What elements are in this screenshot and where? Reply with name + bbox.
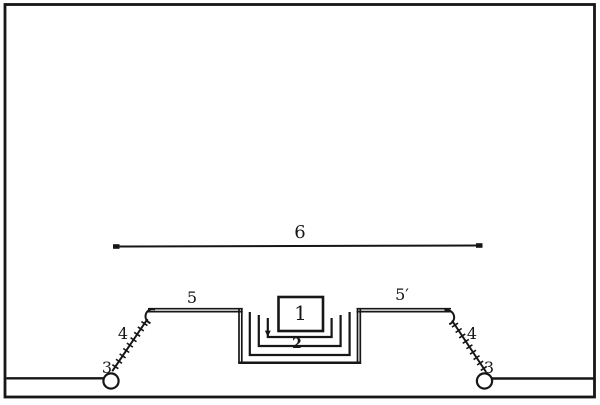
part-label-2: 2 [292,337,302,351]
part-label-3-left: 3 [102,360,112,376]
span-wire-right [357,308,451,363]
figure-canvas: 1 2 3 3 4 4 5 5′ 6 [0,0,600,405]
span-wire-left [148,308,243,363]
part-label-5-right: 5′ [395,287,409,303]
part-label-1: 1 [294,303,307,323]
part-label-4-right: 4 [467,326,477,342]
insulator-string-left [109,317,150,373]
part-label-6: 6 [294,224,305,242]
part-label-5-left: 5 [187,290,197,306]
part-label-3-right: 3 [484,360,494,376]
aerial-wire-line [114,246,482,247]
part-label-4-left: 4 [118,326,128,342]
